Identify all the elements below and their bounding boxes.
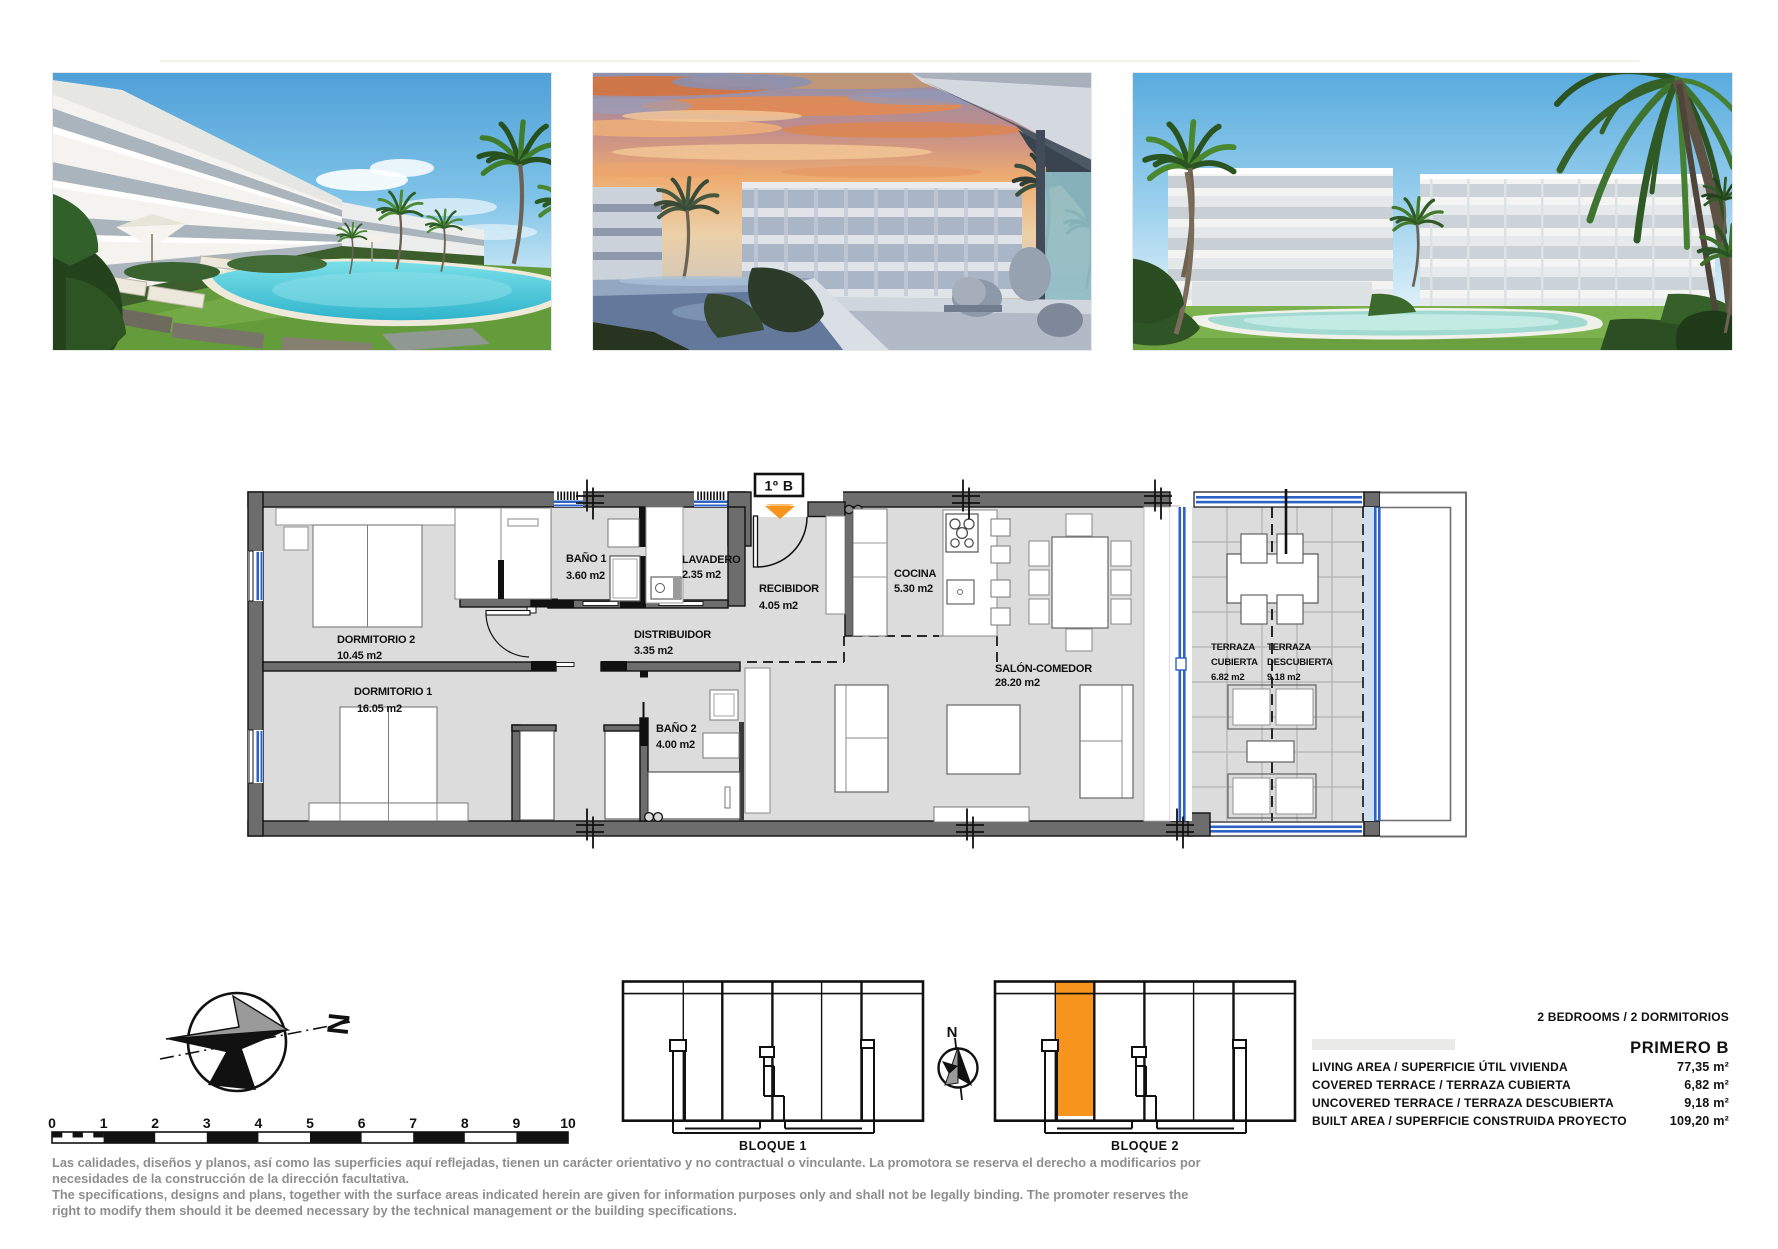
svg-text:3: 3 (203, 1115, 211, 1131)
svg-text:N: N (320, 1011, 355, 1036)
svg-text:LAVADERO: LAVADERO (682, 554, 741, 566)
svg-text:BUILT AREA / SUPERFICIE CONSTR: BUILT AREA / SUPERFICIE CONSTRUIDA PROYE… (1312, 1114, 1627, 1128)
svg-text:4: 4 (255, 1115, 263, 1131)
svg-text:BLOQUE 1: BLOQUE 1 (739, 1139, 807, 1153)
svg-text:1: 1 (100, 1115, 108, 1131)
svg-text:77,35 m²: 77,35 m² (1677, 1060, 1729, 1074)
svg-text:4.05 m2: 4.05 m2 (759, 600, 798, 612)
svg-text:9: 9 (513, 1115, 521, 1131)
svg-text:7: 7 (409, 1115, 417, 1131)
svg-text:LIVING AREA / SUPERFICIE ÚTIL: LIVING AREA / SUPERFICIE ÚTIL VIVIENDA (1312, 1059, 1568, 1074)
svg-text:6.82 m2: 6.82 m2 (1211, 672, 1244, 683)
svg-text:5.30 m2: 5.30 m2 (894, 583, 933, 595)
svg-text:DORMITORIO 2: DORMITORIO 2 (337, 634, 415, 646)
svg-text:DESCUBIERTA: DESCUBIERTA (1267, 657, 1333, 668)
svg-text:3.35 m2: 3.35 m2 (634, 645, 673, 657)
svg-text:5: 5 (306, 1115, 314, 1131)
svg-text:TERRAZA: TERRAZA (1267, 642, 1311, 653)
svg-text:necesidades de la construcción: necesidades de la construcción de la dir… (52, 1171, 409, 1186)
svg-text:9,18 m²: 9,18 m² (1684, 1096, 1729, 1110)
svg-text:2: 2 (151, 1115, 159, 1131)
svg-text:DORMITORIO 1: DORMITORIO 1 (354, 686, 432, 698)
svg-text:UNCOVERED TERRACE / TERRAZA DE: UNCOVERED TERRACE / TERRAZA DESCUBIERTA (1312, 1096, 1614, 1110)
svg-text:Las calidades, diseños y plano: Las calidades, diseños y planos, así com… (52, 1155, 1201, 1170)
svg-text:BAÑO 1: BAÑO 1 (566, 552, 606, 565)
svg-text:COCINA: COCINA (894, 568, 936, 580)
svg-text:TERRAZA: TERRAZA (1211, 642, 1255, 653)
svg-text:8: 8 (461, 1115, 469, 1131)
svg-text:PRIMERO B: PRIMERO B (1630, 1039, 1729, 1057)
svg-text:4.00 m2: 4.00 m2 (656, 739, 695, 751)
svg-text:2 BEDROOMS / 2 DORMITORIOS: 2 BEDROOMS / 2 DORMITORIOS (1537, 1010, 1729, 1024)
svg-text:RECIBIDOR: RECIBIDOR (759, 583, 819, 595)
svg-text:CUBIERTA: CUBIERTA (1211, 657, 1258, 668)
svg-text:The specifications, designs an: The specifications, designs and plans, t… (52, 1187, 1188, 1202)
svg-text:10: 10 (560, 1115, 576, 1131)
svg-text:2.35 m2: 2.35 m2 (682, 569, 721, 581)
svg-text:BAÑO 2: BAÑO 2 (656, 722, 696, 735)
svg-text:1º B: 1º B (765, 478, 794, 494)
svg-text:6,82 m²: 6,82 m² (1684, 1078, 1729, 1092)
svg-text:28.20 m2: 28.20 m2 (995, 677, 1040, 689)
svg-text:10.45 m2: 10.45 m2 (337, 650, 382, 662)
svg-text:6: 6 (358, 1115, 366, 1131)
svg-text:right to modify them should it: right to modify them should it be deemed… (52, 1203, 737, 1218)
svg-text:SALÓN-COMEDOR: SALÓN-COMEDOR (995, 662, 1092, 675)
svg-text:0: 0 (48, 1115, 56, 1131)
svg-text:9.18 m2: 9.18 m2 (1267, 672, 1300, 683)
svg-text:BLOQUE 2: BLOQUE 2 (1111, 1139, 1179, 1153)
svg-text:DISTRIBUIDOR: DISTRIBUIDOR (634, 629, 711, 641)
svg-text:COVERED TERRACE / TERRAZA CUBI: COVERED TERRACE / TERRAZA CUBIERTA (1312, 1078, 1571, 1092)
svg-text:109,20 m²: 109,20 m² (1670, 1114, 1729, 1128)
svg-text:3.60 m2: 3.60 m2 (566, 570, 605, 582)
svg-text:16.05 m2: 16.05 m2 (357, 703, 402, 715)
